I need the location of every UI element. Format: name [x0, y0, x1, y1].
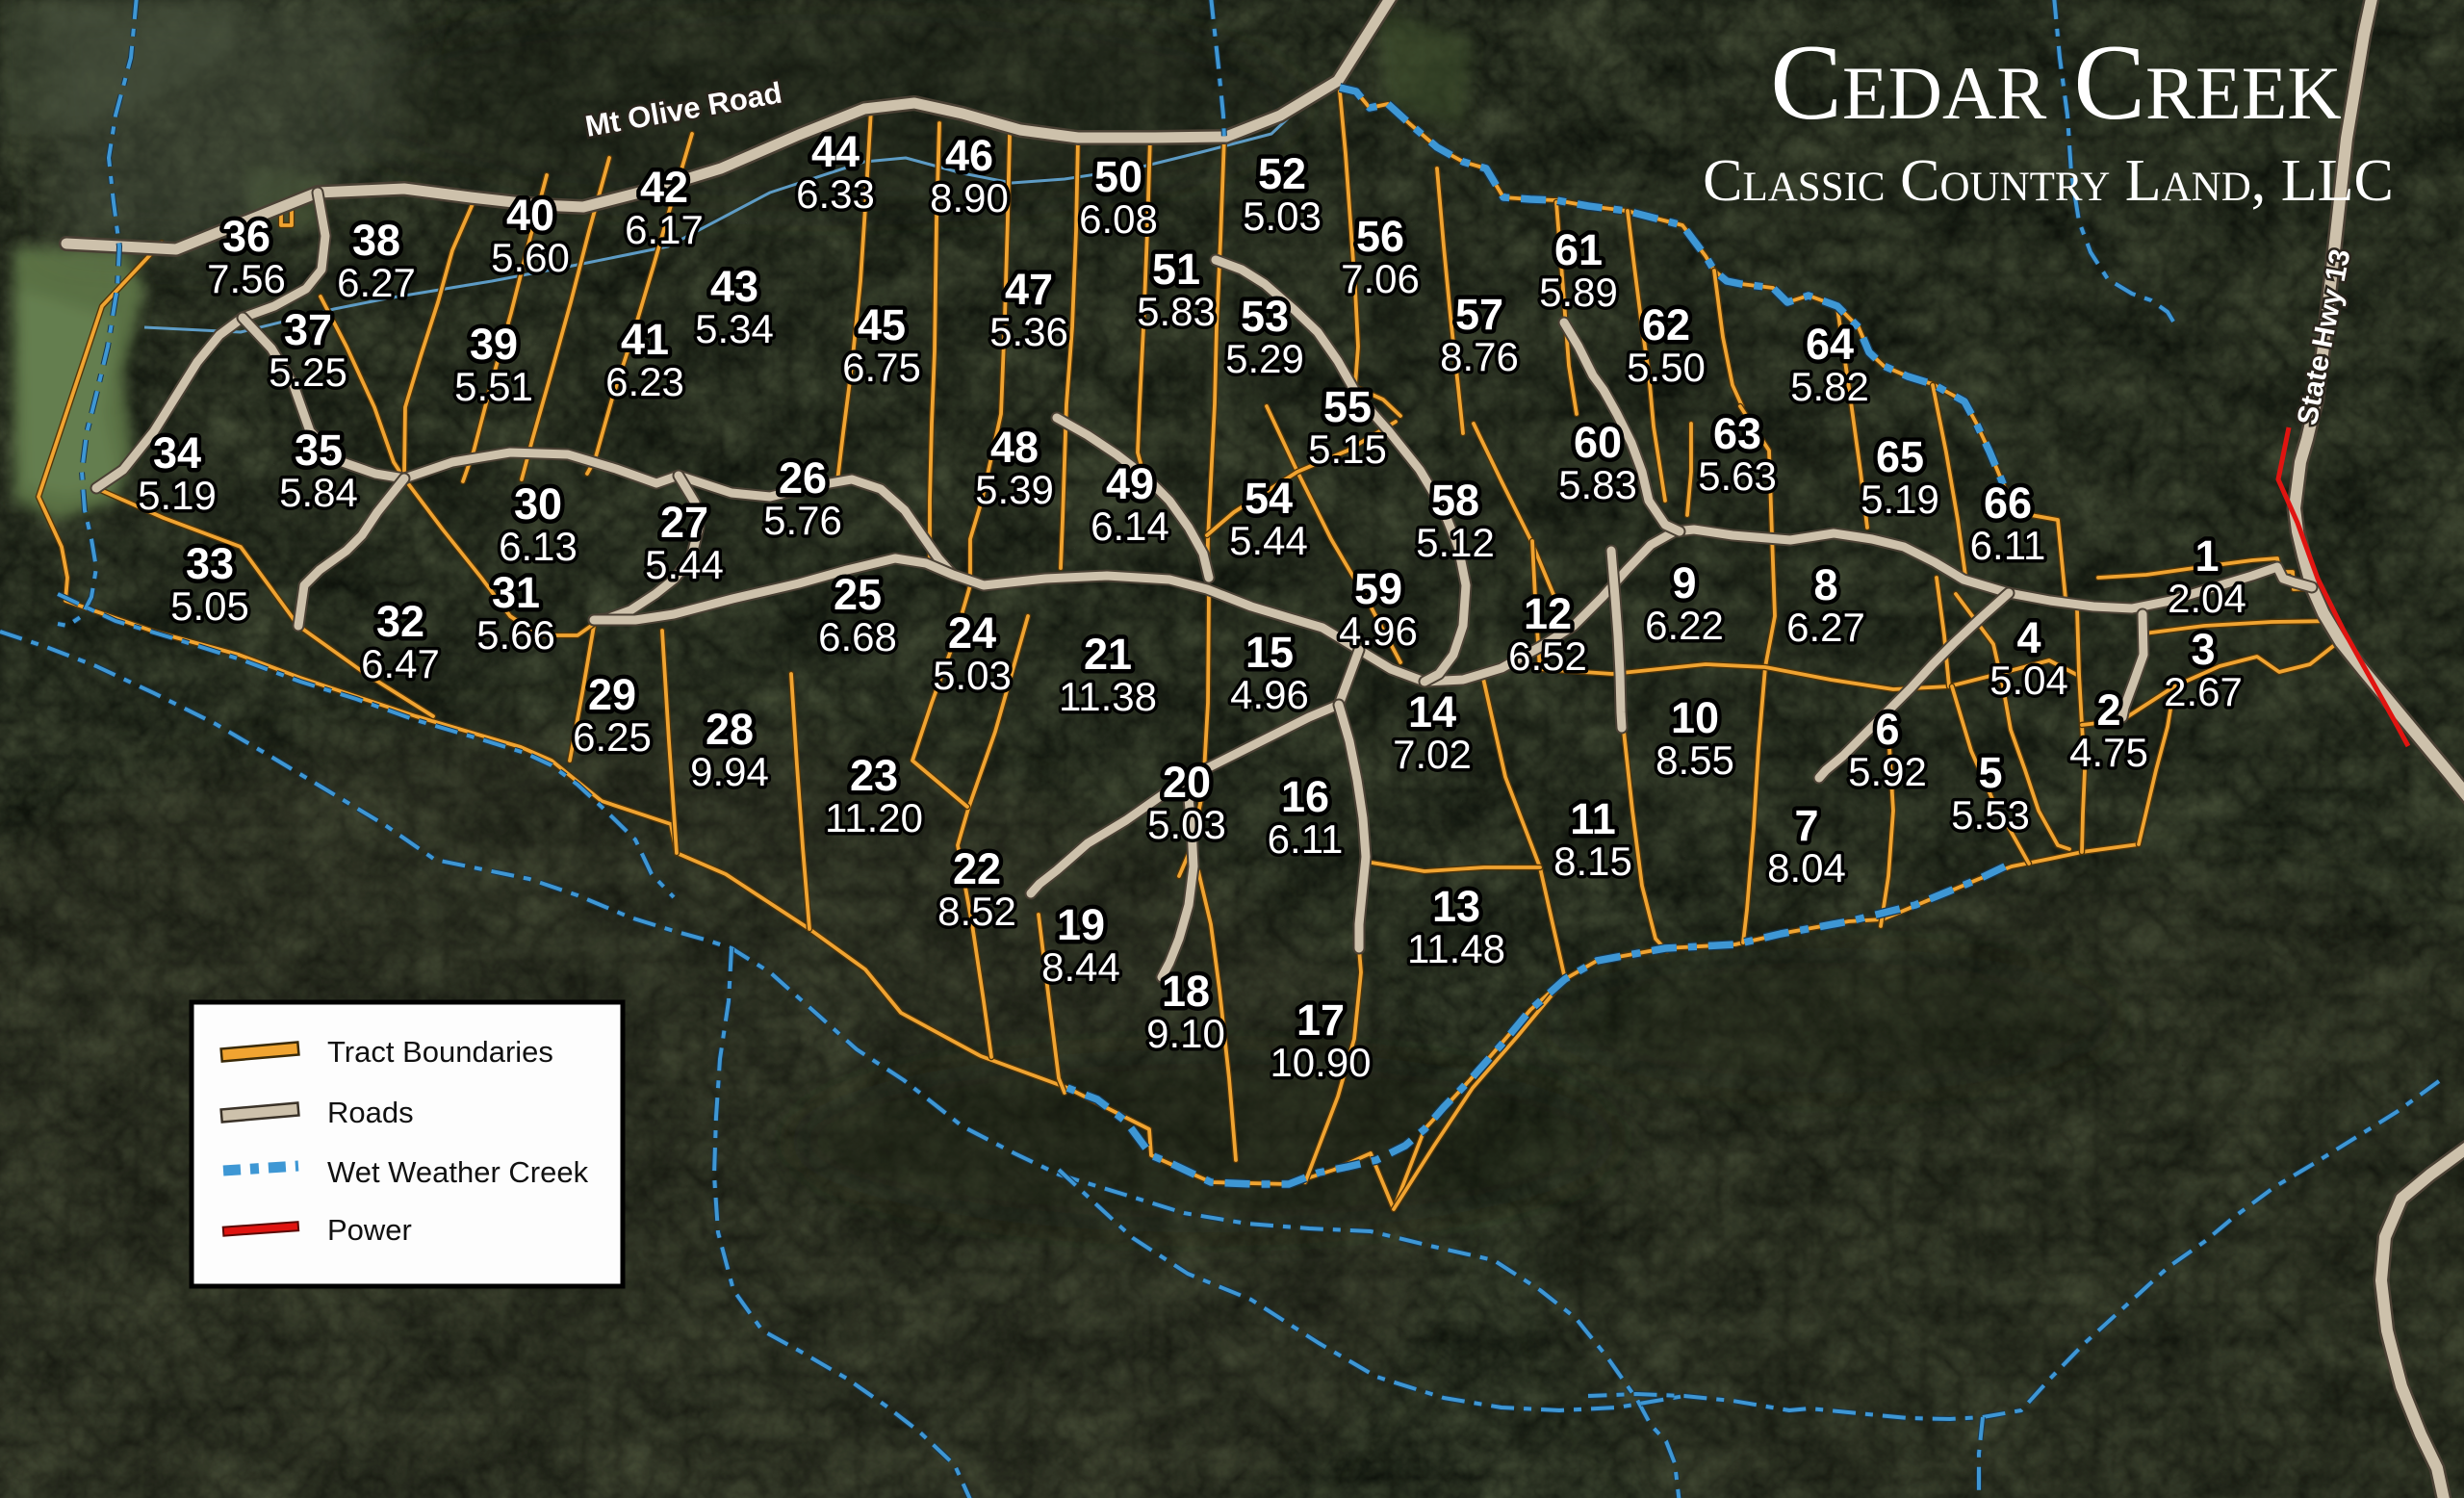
svg-text:27: 27 [660, 498, 708, 547]
svg-text:9.94: 9.94 [690, 749, 769, 794]
svg-text:55: 55 [1323, 382, 1372, 431]
svg-text:5.15: 5.15 [1308, 426, 1387, 472]
svg-text:8.04: 8.04 [1767, 845, 1846, 891]
svg-text:5.34: 5.34 [695, 306, 774, 351]
svg-text:11: 11 [1570, 794, 1616, 843]
svg-text:8.90: 8.90 [930, 175, 1009, 220]
svg-text:6.08: 6.08 [1079, 196, 1158, 242]
svg-text:Cedar Creek: Cedar Creek [1770, 23, 2341, 142]
svg-text:8.76: 8.76 [1440, 334, 1519, 379]
svg-text:66: 66 [1984, 478, 2032, 528]
svg-text:5.04: 5.04 [1989, 658, 2068, 703]
svg-text:7: 7 [1794, 801, 1818, 850]
svg-text:16: 16 [1281, 772, 1329, 821]
svg-text:5.66: 5.66 [476, 612, 555, 658]
svg-text:63: 63 [1713, 409, 1761, 458]
svg-text:23: 23 [850, 751, 898, 800]
svg-text:41: 41 [621, 315, 669, 364]
svg-text:53: 53 [1241, 292, 1289, 341]
svg-text:29: 29 [588, 670, 636, 719]
svg-text:45: 45 [858, 300, 906, 349]
svg-text:5.60: 5.60 [491, 235, 570, 280]
svg-text:47: 47 [1005, 265, 1053, 314]
svg-text:5.53: 5.53 [1951, 792, 2030, 838]
svg-text:6.52: 6.52 [1508, 633, 1587, 679]
svg-text:37: 37 [284, 305, 332, 354]
svg-text:Power: Power [327, 1213, 412, 1247]
svg-text:6.27: 6.27 [337, 260, 416, 305]
svg-text:18: 18 [1162, 967, 1210, 1016]
svg-text:5.19: 5.19 [138, 473, 217, 518]
svg-text:64: 64 [1806, 320, 1854, 369]
svg-text:5.39: 5.39 [975, 467, 1054, 512]
svg-text:8.55: 8.55 [1655, 737, 1734, 783]
svg-text:38: 38 [352, 216, 400, 265]
svg-text:1: 1 [2194, 531, 2219, 581]
svg-text:10: 10 [1671, 693, 1719, 742]
svg-text:11.48: 11.48 [1407, 926, 1505, 971]
svg-text:Wet Weather Creek: Wet Weather Creek [327, 1155, 589, 1189]
svg-text:40: 40 [506, 191, 554, 240]
svg-text:2.04: 2.04 [2168, 576, 2246, 621]
svg-text:6.23: 6.23 [605, 359, 684, 404]
svg-text:49: 49 [1106, 459, 1154, 508]
svg-text:8: 8 [1813, 560, 1837, 609]
svg-text:5.03: 5.03 [1243, 194, 1322, 239]
svg-text:5.05: 5.05 [170, 583, 249, 629]
svg-text:5.44: 5.44 [1229, 518, 1308, 563]
svg-text:20: 20 [1163, 758, 1211, 807]
svg-text:Tract Boundaries: Tract Boundaries [327, 1035, 553, 1069]
svg-text:12: 12 [1524, 589, 1572, 638]
svg-text:5.25: 5.25 [269, 349, 347, 395]
svg-text:8.44: 8.44 [1041, 944, 1120, 990]
svg-text:11.20: 11.20 [825, 795, 923, 840]
svg-text:3: 3 [2191, 625, 2215, 674]
svg-text:19: 19 [1057, 900, 1105, 949]
svg-text:52: 52 [1258, 149, 1306, 198]
svg-text:17: 17 [1296, 995, 1345, 1045]
svg-text:32: 32 [376, 597, 424, 646]
svg-text:46: 46 [945, 131, 993, 180]
svg-text:60: 60 [1574, 418, 1622, 467]
svg-text:44: 44 [811, 127, 860, 176]
svg-text:58: 58 [1431, 476, 1479, 525]
svg-text:4.96: 4.96 [1339, 608, 1418, 654]
svg-text:6.75: 6.75 [842, 345, 921, 390]
svg-text:8.15: 8.15 [1553, 839, 1632, 884]
svg-text:21: 21 [1084, 630, 1132, 679]
svg-text:36: 36 [222, 212, 270, 261]
svg-text:5.36: 5.36 [989, 309, 1068, 354]
svg-text:4.96: 4.96 [1230, 672, 1309, 717]
svg-text:24: 24 [948, 608, 996, 658]
svg-text:22: 22 [953, 844, 1001, 893]
svg-text:6.22: 6.22 [1645, 603, 1724, 648]
svg-text:39: 39 [470, 320, 518, 369]
svg-text:4.75: 4.75 [2069, 730, 2148, 775]
svg-text:6.17: 6.17 [625, 207, 704, 252]
svg-text:5.44: 5.44 [645, 542, 724, 587]
svg-text:25: 25 [834, 570, 882, 619]
svg-text:5.84: 5.84 [279, 470, 358, 515]
svg-text:5.51: 5.51 [454, 364, 533, 409]
svg-text:15: 15 [1245, 628, 1294, 677]
svg-text:6.33: 6.33 [796, 171, 875, 217]
svg-text:33: 33 [186, 539, 234, 588]
svg-text:5.89: 5.89 [1539, 270, 1618, 315]
svg-text:31: 31 [492, 568, 540, 617]
svg-text:5.03: 5.03 [933, 653, 1012, 698]
svg-text:43: 43 [710, 262, 758, 311]
svg-text:48: 48 [990, 423, 1039, 472]
svg-text:7.56: 7.56 [207, 256, 286, 301]
svg-text:5.83: 5.83 [1137, 289, 1216, 334]
svg-text:10.90: 10.90 [1270, 1040, 1371, 1085]
svg-text:6: 6 [1875, 705, 1899, 754]
svg-text:6.14: 6.14 [1091, 504, 1169, 549]
svg-text:8.52: 8.52 [937, 889, 1016, 934]
svg-text:5.12: 5.12 [1416, 520, 1495, 565]
svg-text:7.02: 7.02 [1393, 732, 1472, 777]
svg-text:14: 14 [1408, 687, 1456, 736]
svg-text:13: 13 [1432, 882, 1480, 931]
svg-text:5.63: 5.63 [1698, 453, 1777, 499]
svg-text:51: 51 [1152, 245, 1200, 294]
svg-text:26: 26 [779, 453, 827, 503]
svg-text:5.76: 5.76 [763, 498, 842, 543]
svg-text:28: 28 [706, 705, 754, 754]
svg-text:42: 42 [640, 163, 688, 212]
svg-text:30: 30 [514, 479, 562, 529]
svg-text:5.92: 5.92 [1848, 749, 1927, 794]
svg-text:5.29: 5.29 [1225, 336, 1304, 381]
svg-text:6.11: 6.11 [1970, 523, 2046, 568]
svg-text:62: 62 [1642, 300, 1690, 349]
svg-text:5.83: 5.83 [1558, 462, 1637, 507]
svg-text:4: 4 [2016, 613, 2040, 662]
svg-text:5.03: 5.03 [1147, 802, 1226, 847]
svg-text:Classic Country Land, LLC: Classic Country Land, LLC [1703, 148, 2394, 214]
svg-text:57: 57 [1455, 290, 1503, 339]
svg-text:6.25: 6.25 [573, 714, 652, 760]
svg-text:2: 2 [2096, 685, 2120, 735]
svg-text:Roads: Roads [327, 1096, 414, 1129]
svg-text:2.67: 2.67 [2164, 669, 2243, 714]
svg-text:11.38: 11.38 [1059, 674, 1157, 719]
svg-text:6.27: 6.27 [1786, 605, 1865, 650]
svg-text:56: 56 [1356, 212, 1404, 261]
svg-text:54: 54 [1245, 474, 1293, 523]
svg-text:6.13: 6.13 [499, 524, 577, 569]
svg-text:9.10: 9.10 [1146, 1011, 1225, 1056]
svg-text:5.82: 5.82 [1790, 364, 1869, 409]
svg-text:6.47: 6.47 [361, 641, 440, 686]
svg-text:59: 59 [1354, 564, 1402, 613]
svg-text:6.11: 6.11 [1268, 816, 1344, 862]
svg-text:5: 5 [1978, 748, 2002, 797]
svg-text:5.19: 5.19 [1861, 477, 1939, 522]
svg-text:34: 34 [153, 428, 201, 478]
svg-text:9: 9 [1672, 558, 1696, 607]
svg-text:35: 35 [295, 426, 343, 475]
svg-text:65: 65 [1876, 432, 1924, 481]
svg-text:7.06: 7.06 [1341, 256, 1420, 301]
svg-text:5.50: 5.50 [1627, 345, 1706, 390]
svg-text:50: 50 [1094, 152, 1142, 201]
svg-text:61: 61 [1554, 225, 1603, 274]
svg-text:6.68: 6.68 [818, 614, 897, 659]
